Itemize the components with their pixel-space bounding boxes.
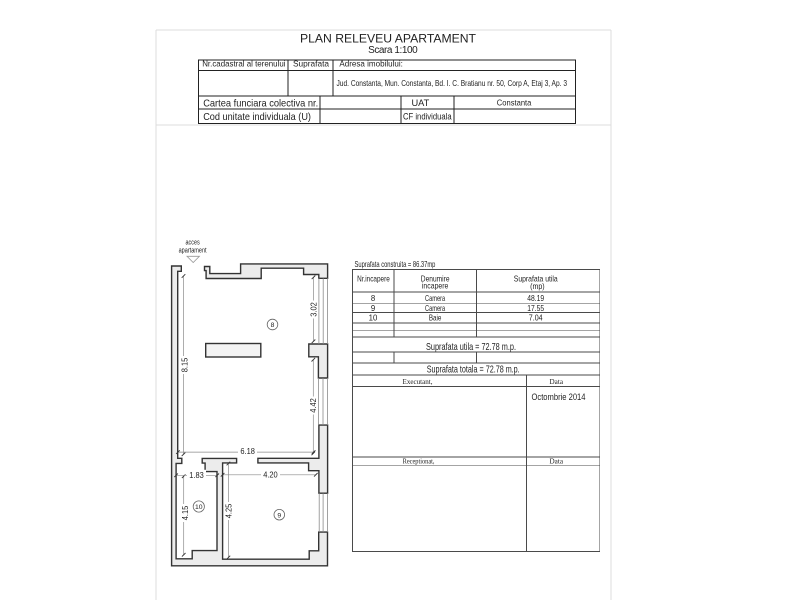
svg-text:10: 10	[195, 504, 203, 511]
svg-text:Scara 1:100: Scara 1:100	[368, 45, 418, 56]
svg-text:incapere: incapere	[422, 281, 449, 291]
svg-text:Octombrie 2014: Octombrie 2014	[532, 392, 586, 402]
svg-text:48.19: 48.19	[527, 293, 544, 303]
svg-text:Cod unitate individuala (U): Cod unitate individuala (U)	[203, 112, 311, 123]
svg-text:8.15: 8.15	[181, 357, 190, 372]
svg-text:acces: acces	[186, 239, 201, 246]
svg-text:Adresa imobilului:: Adresa imobilului:	[339, 58, 403, 68]
svg-text:Baie: Baie	[429, 313, 442, 323]
svg-text:4.42: 4.42	[309, 398, 318, 413]
svg-text:10: 10	[369, 314, 378, 323]
svg-text:1.83: 1.83	[189, 471, 204, 480]
svg-text:Suprafata: Suprafata	[293, 58, 329, 68]
svg-text:3.02: 3.02	[309, 302, 318, 317]
svg-text:6.18: 6.18	[240, 447, 255, 456]
svg-text:Suprafata utila = 72.78 m.p.: Suprafata utila = 72.78 m.p.	[426, 342, 516, 353]
svg-text:4.15: 4.15	[181, 505, 190, 520]
svg-text:9: 9	[371, 304, 375, 313]
svg-text:PLAN RELEVEU APARTAMENT: PLAN RELEVEU APARTAMENT	[300, 32, 477, 46]
svg-text:4.25: 4.25	[225, 503, 234, 518]
svg-text:7.04: 7.04	[529, 313, 543, 323]
svg-text:Camera: Camera	[425, 293, 445, 303]
svg-text:Suprafata construita = 86.37mp: Suprafata construita = 86.37mp	[355, 259, 436, 269]
svg-text:Nr.cadastral al terenului: Nr.cadastral al terenului	[202, 58, 285, 68]
svg-text:Suprafata totala = 72.78 m.p.: Suprafata totala = 72.78 m.p.	[427, 364, 520, 375]
svg-text:Data: Data	[550, 377, 564, 386]
svg-text:Data: Data	[550, 456, 564, 465]
svg-text:8: 8	[271, 322, 275, 329]
svg-text:Constanta: Constanta	[497, 97, 532, 107]
svg-text:Jud. Constanta, Mun. Constanta: Jud. Constanta, Mun. Constanta, Bd. I. C…	[337, 79, 568, 88]
svg-text:apartament: apartament	[179, 247, 207, 254]
svg-text:8: 8	[371, 294, 375, 303]
svg-text:Receptionat,: Receptionat,	[403, 456, 435, 465]
svg-text:9: 9	[277, 512, 281, 519]
svg-text:Camera: Camera	[425, 303, 445, 313]
svg-text:UAT: UAT	[412, 98, 430, 108]
svg-text:(mp): (mp)	[530, 281, 545, 291]
svg-text:Cartea funciara colectiva nr.: Cartea funciara colectiva nr.	[203, 98, 318, 109]
svg-text:CF individuala: CF individuala	[403, 112, 452, 122]
svg-text:Executant,: Executant,	[403, 377, 433, 386]
svg-text:4.20: 4.20	[263, 470, 278, 479]
svg-text:17.55: 17.55	[527, 303, 544, 313]
svg-text:Nr.incapere: Nr.incapere	[357, 273, 390, 283]
